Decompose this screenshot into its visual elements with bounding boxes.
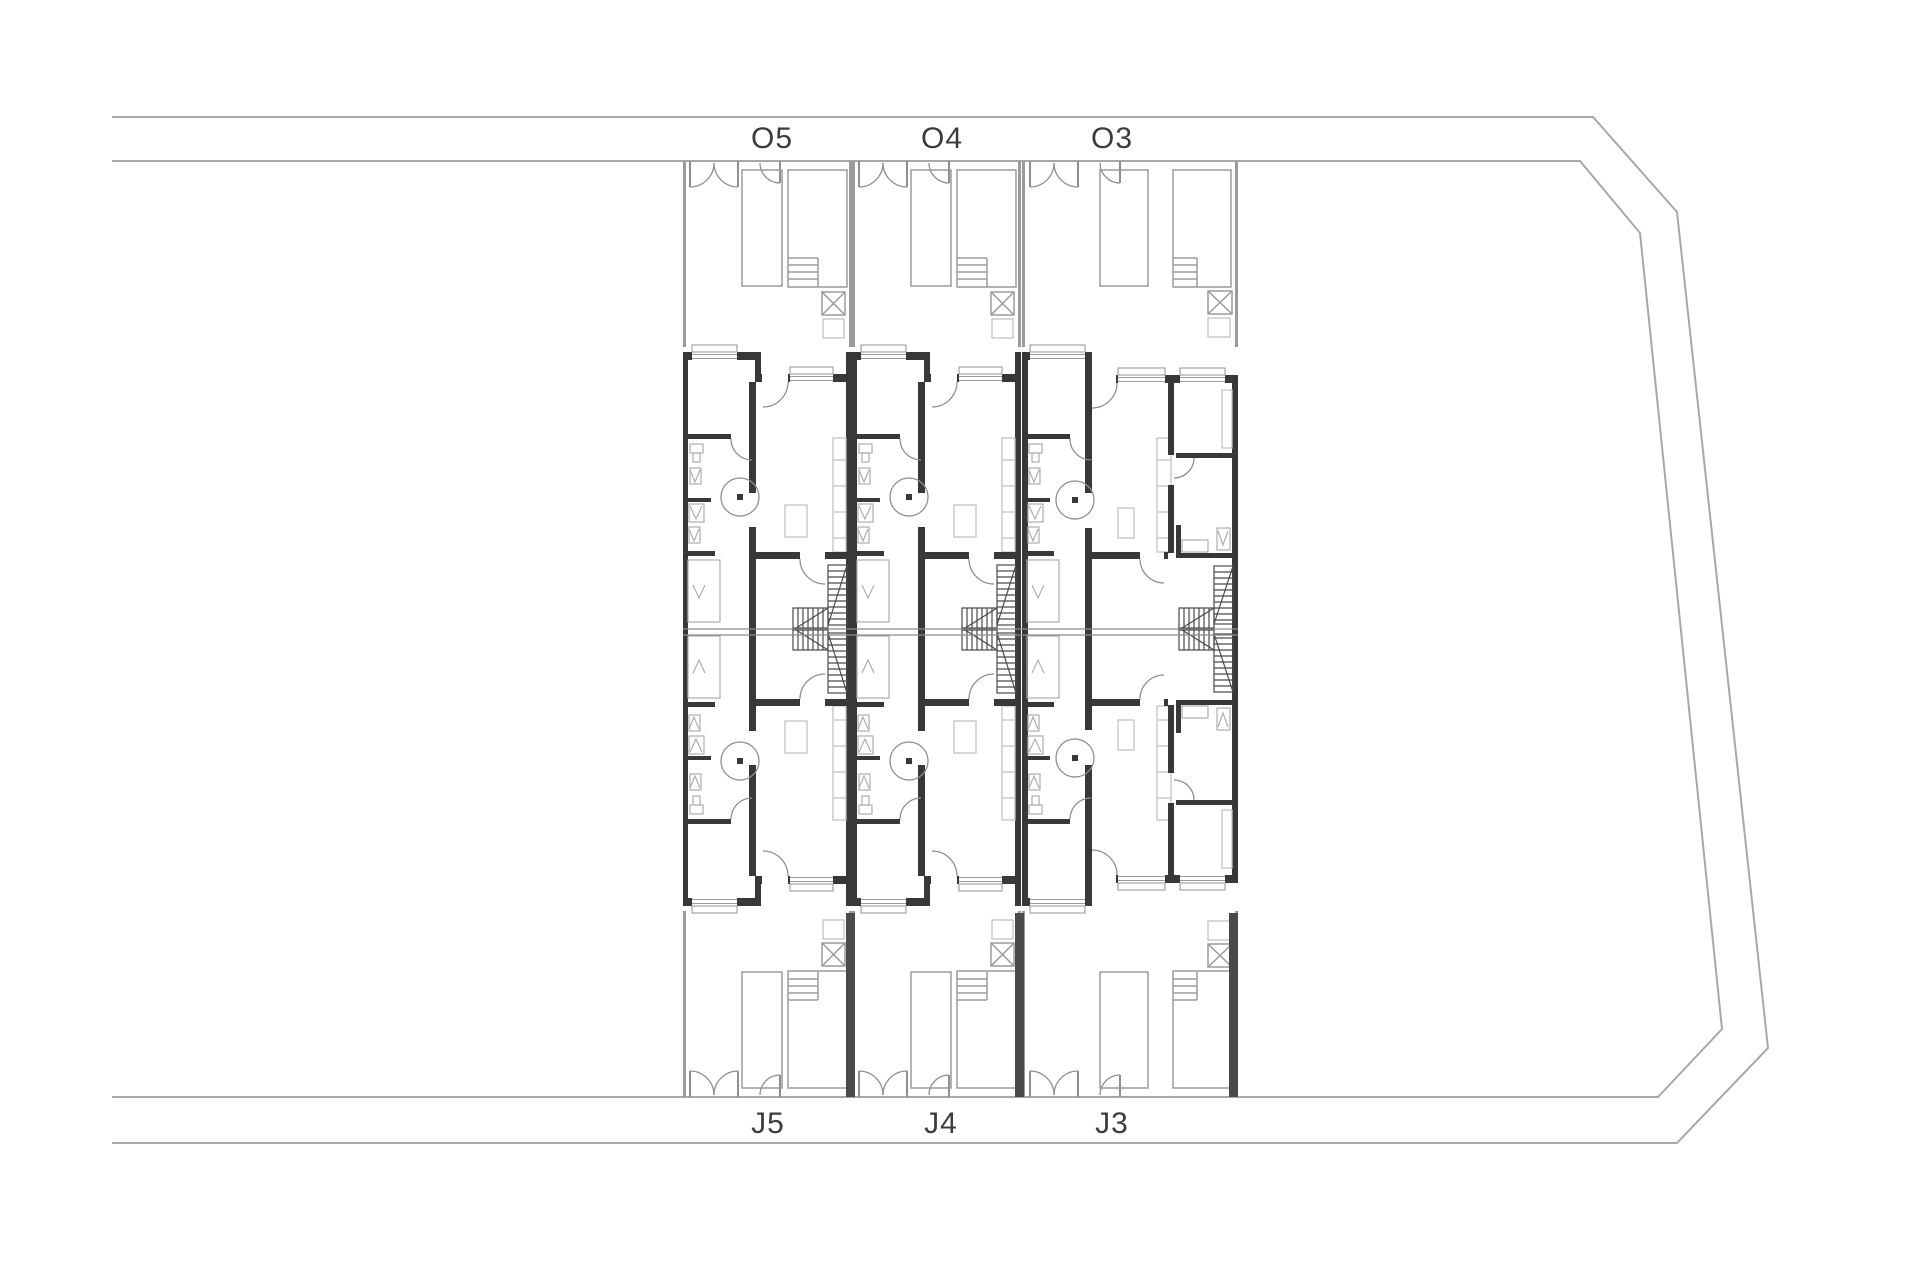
floor-plan-page: O5 O4 O3 J5 J4 J3 [0, 0, 1920, 1280]
unit-label-o3: O3 [1091, 122, 1133, 155]
unit-label-j5: J5 [751, 1107, 785, 1140]
site-plan-drawing: O5 O4 O3 J5 J4 J3 [0, 0, 1920, 1280]
unit-label-o5: O5 [751, 122, 793, 155]
unit-label-j4: J4 [924, 1107, 958, 1140]
unit-label-j3: J3 [1095, 1107, 1129, 1140]
site-boundary [112, 117, 1768, 1143]
unit-labels-bottom: J5 J4 J3 [751, 1107, 1129, 1140]
lower-patio-party-walls [846, 913, 1238, 1097]
unit-labels-top: O5 O4 O3 [751, 122, 1133, 155]
party-line [683, 629, 1238, 635]
unit-label-o4: O4 [921, 122, 963, 155]
site-boundary-outer [112, 117, 1768, 1143]
